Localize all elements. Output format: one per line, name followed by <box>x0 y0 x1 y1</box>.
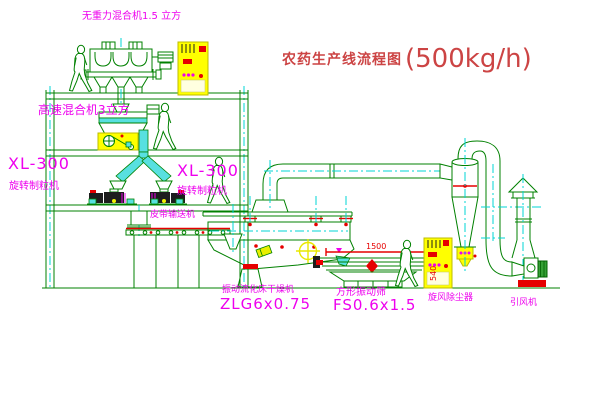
title-text: 农药生产线流程图 <box>282 49 402 69</box>
label-cyclone: 旋风除尘器 <box>428 294 473 303</box>
granulator-left <box>87 189 137 204</box>
label-granulator-left-model: XL-300 <box>8 156 70 172</box>
worker-top-floor <box>70 45 92 91</box>
dimension-sieve-height: 540 <box>429 266 438 281</box>
label-granulator-right-model: XL-300 <box>177 163 239 179</box>
label-granulator-left-name: 旋转制粒机 <box>9 182 59 192</box>
flow-diagram-canvas: 农药生产线流程图 (500kg/h) 无重力混合机1.5 立方 高速混合机3立方… <box>0 0 600 403</box>
dimension-sieve-length: 1500 <box>366 242 386 251</box>
label-sieve-model: FS0.6x1.5 <box>333 298 416 313</box>
label-gravity-mixer: 无重力混合机1.5 立方 <box>82 12 181 22</box>
diagram-title: 农药生产线流程图 (500kg/h) <box>282 44 532 74</box>
label-dryer-model: ZLG6x0.75 <box>220 297 311 312</box>
label-high-speed-mixer: 高速混合机3立方 <box>38 104 130 116</box>
discharge-chute <box>127 211 151 227</box>
exhaust-duct <box>252 160 446 212</box>
induced-draft-fan <box>512 258 547 287</box>
control-cabinet-upper <box>178 42 208 95</box>
label-fan: 引风机 <box>510 299 537 308</box>
label-dryer-name: 振动流化床干燥机 <box>222 286 294 295</box>
label-granulator-right-name: 旋转制粒机 <box>177 187 227 197</box>
label-belt-conveyor: 皮带输送机 <box>150 211 195 220</box>
title-capacity: (500kg/h) <box>405 44 532 74</box>
belt-conveyor <box>126 229 230 289</box>
